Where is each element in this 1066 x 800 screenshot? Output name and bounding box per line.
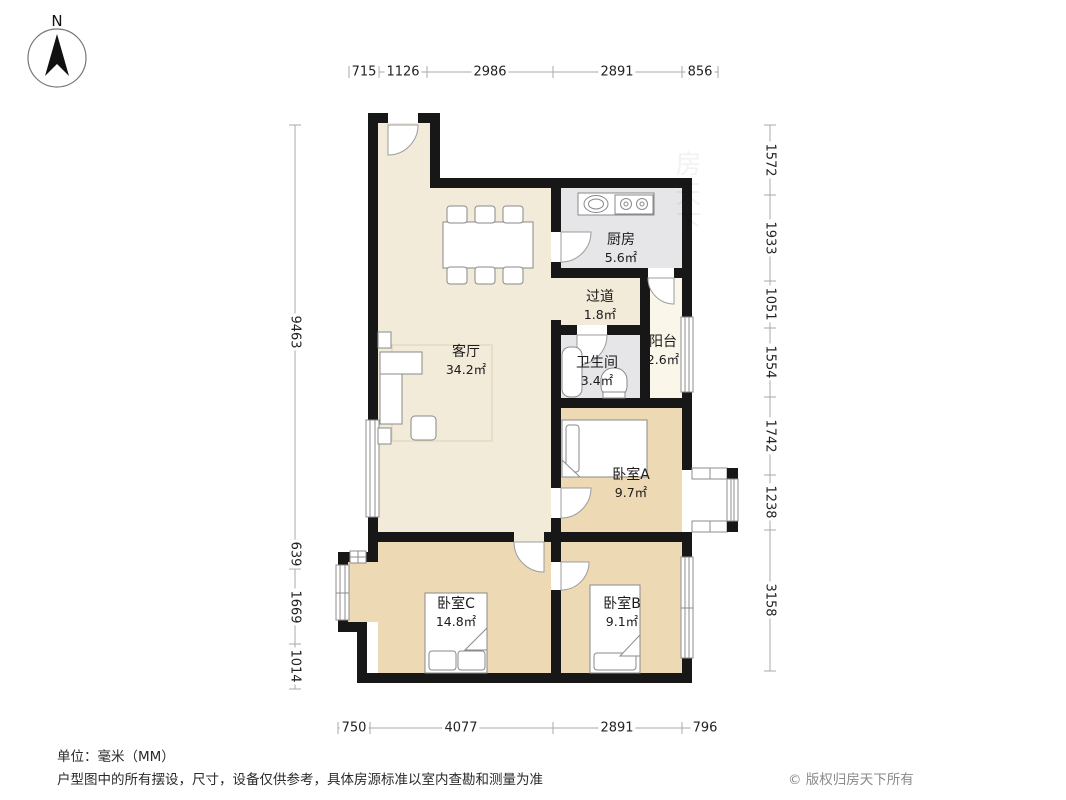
room-area: 14.8㎡ xyxy=(436,613,476,630)
unit-note: 单位：毫米（MM） xyxy=(57,745,175,765)
room-area: 1.8㎡ xyxy=(584,306,616,323)
room-name: 卫生间 xyxy=(576,355,618,372)
armchair xyxy=(411,416,436,440)
north-label: N xyxy=(51,12,62,30)
room-label-balcony: 阳台 2.6㎡ xyxy=(647,334,679,368)
dim-left-9463: 9463 xyxy=(288,313,303,350)
dim-right-1742: 1742 xyxy=(763,417,778,454)
dim-top-1126: 1126 xyxy=(384,65,421,80)
room-label-living: 客厅 34.2㎡ xyxy=(446,344,486,378)
kitchen-fixtures xyxy=(578,193,654,215)
bay-window-bedroomA xyxy=(692,468,738,532)
room-name: 阳台 xyxy=(647,334,679,351)
dim-top-2986: 2986 xyxy=(471,65,508,80)
disclaimer: 户型图中的所有摆设，尺寸，设备仅供参考，具体房源标准以室内查勘和测量为准 xyxy=(57,768,543,788)
dim-bottom-2891: 2891 xyxy=(598,721,635,736)
north-compass xyxy=(28,29,86,87)
room-name: 厨房 xyxy=(605,232,637,249)
room-label-bedroomB: 卧室B 9.1㎡ xyxy=(603,596,641,630)
room-name: 卧室A xyxy=(612,467,650,484)
watermark: 房天下 xyxy=(668,150,705,240)
room-label-kitchen: 厨房 5.6㎡ xyxy=(605,232,637,266)
room-name: 过道 xyxy=(584,289,616,306)
room-area: 9.1㎡ xyxy=(603,613,641,630)
dim-left-639: 639 xyxy=(288,540,303,569)
room-label-hallway: 过道 1.8㎡ xyxy=(584,289,616,323)
dim-right-1572: 1572 xyxy=(763,141,778,178)
room-label-bathroom: 卫生间 3.4㎡ xyxy=(576,355,618,389)
dim-top-715: 715 xyxy=(350,65,379,80)
room-label-bedroomA: 卧室A 9.7㎡ xyxy=(612,467,650,501)
sofa xyxy=(380,352,422,374)
window-bedroomC-top xyxy=(350,551,366,563)
room-area: 9.7㎡ xyxy=(612,484,650,501)
room-name: 卧室B xyxy=(603,596,641,613)
room-area: 3.4㎡ xyxy=(576,372,618,389)
dining-table xyxy=(443,222,533,268)
dim-left-1014: 1014 xyxy=(288,647,303,684)
dim-bottom-750: 750 xyxy=(340,721,369,736)
window-balcony-right xyxy=(681,317,693,392)
window-bedroomC-left xyxy=(336,565,349,620)
dim-top-2891: 2891 xyxy=(598,65,635,80)
dim-left-1669: 1669 xyxy=(288,588,303,625)
dim-top-856: 856 xyxy=(686,65,715,80)
dim-right-1554: 1554 xyxy=(763,343,778,380)
window-living-left xyxy=(366,420,379,517)
room-area: 2.6㎡ xyxy=(647,351,679,368)
dim-bottom-4077: 4077 xyxy=(442,721,479,736)
room-label-bedroomC: 卧室C 14.8㎡ xyxy=(436,596,476,630)
dim-right-1051: 1051 xyxy=(763,285,778,322)
dim-bottom-796: 796 xyxy=(691,721,720,736)
copyright: © 版权归房天下所有 xyxy=(788,768,914,788)
room-name: 客厅 xyxy=(446,344,486,361)
dim-right-1238: 1238 xyxy=(763,483,778,520)
dim-right-1933: 1933 xyxy=(763,219,778,256)
room-area: 5.6㎡ xyxy=(605,249,637,266)
room-name: 卧室C xyxy=(436,596,476,613)
room-area: 34.2㎡ xyxy=(446,361,486,378)
dim-right-3158: 3158 xyxy=(763,581,778,618)
window-bedroomB-right xyxy=(681,557,693,658)
floorplan-drawing xyxy=(0,0,1066,800)
floorplan-page: 房天下 N 厨房 5.6㎡ 过道 1.8㎡ 阳台 2.6㎡ 卫生间 3.4㎡ 客… xyxy=(0,0,1066,800)
